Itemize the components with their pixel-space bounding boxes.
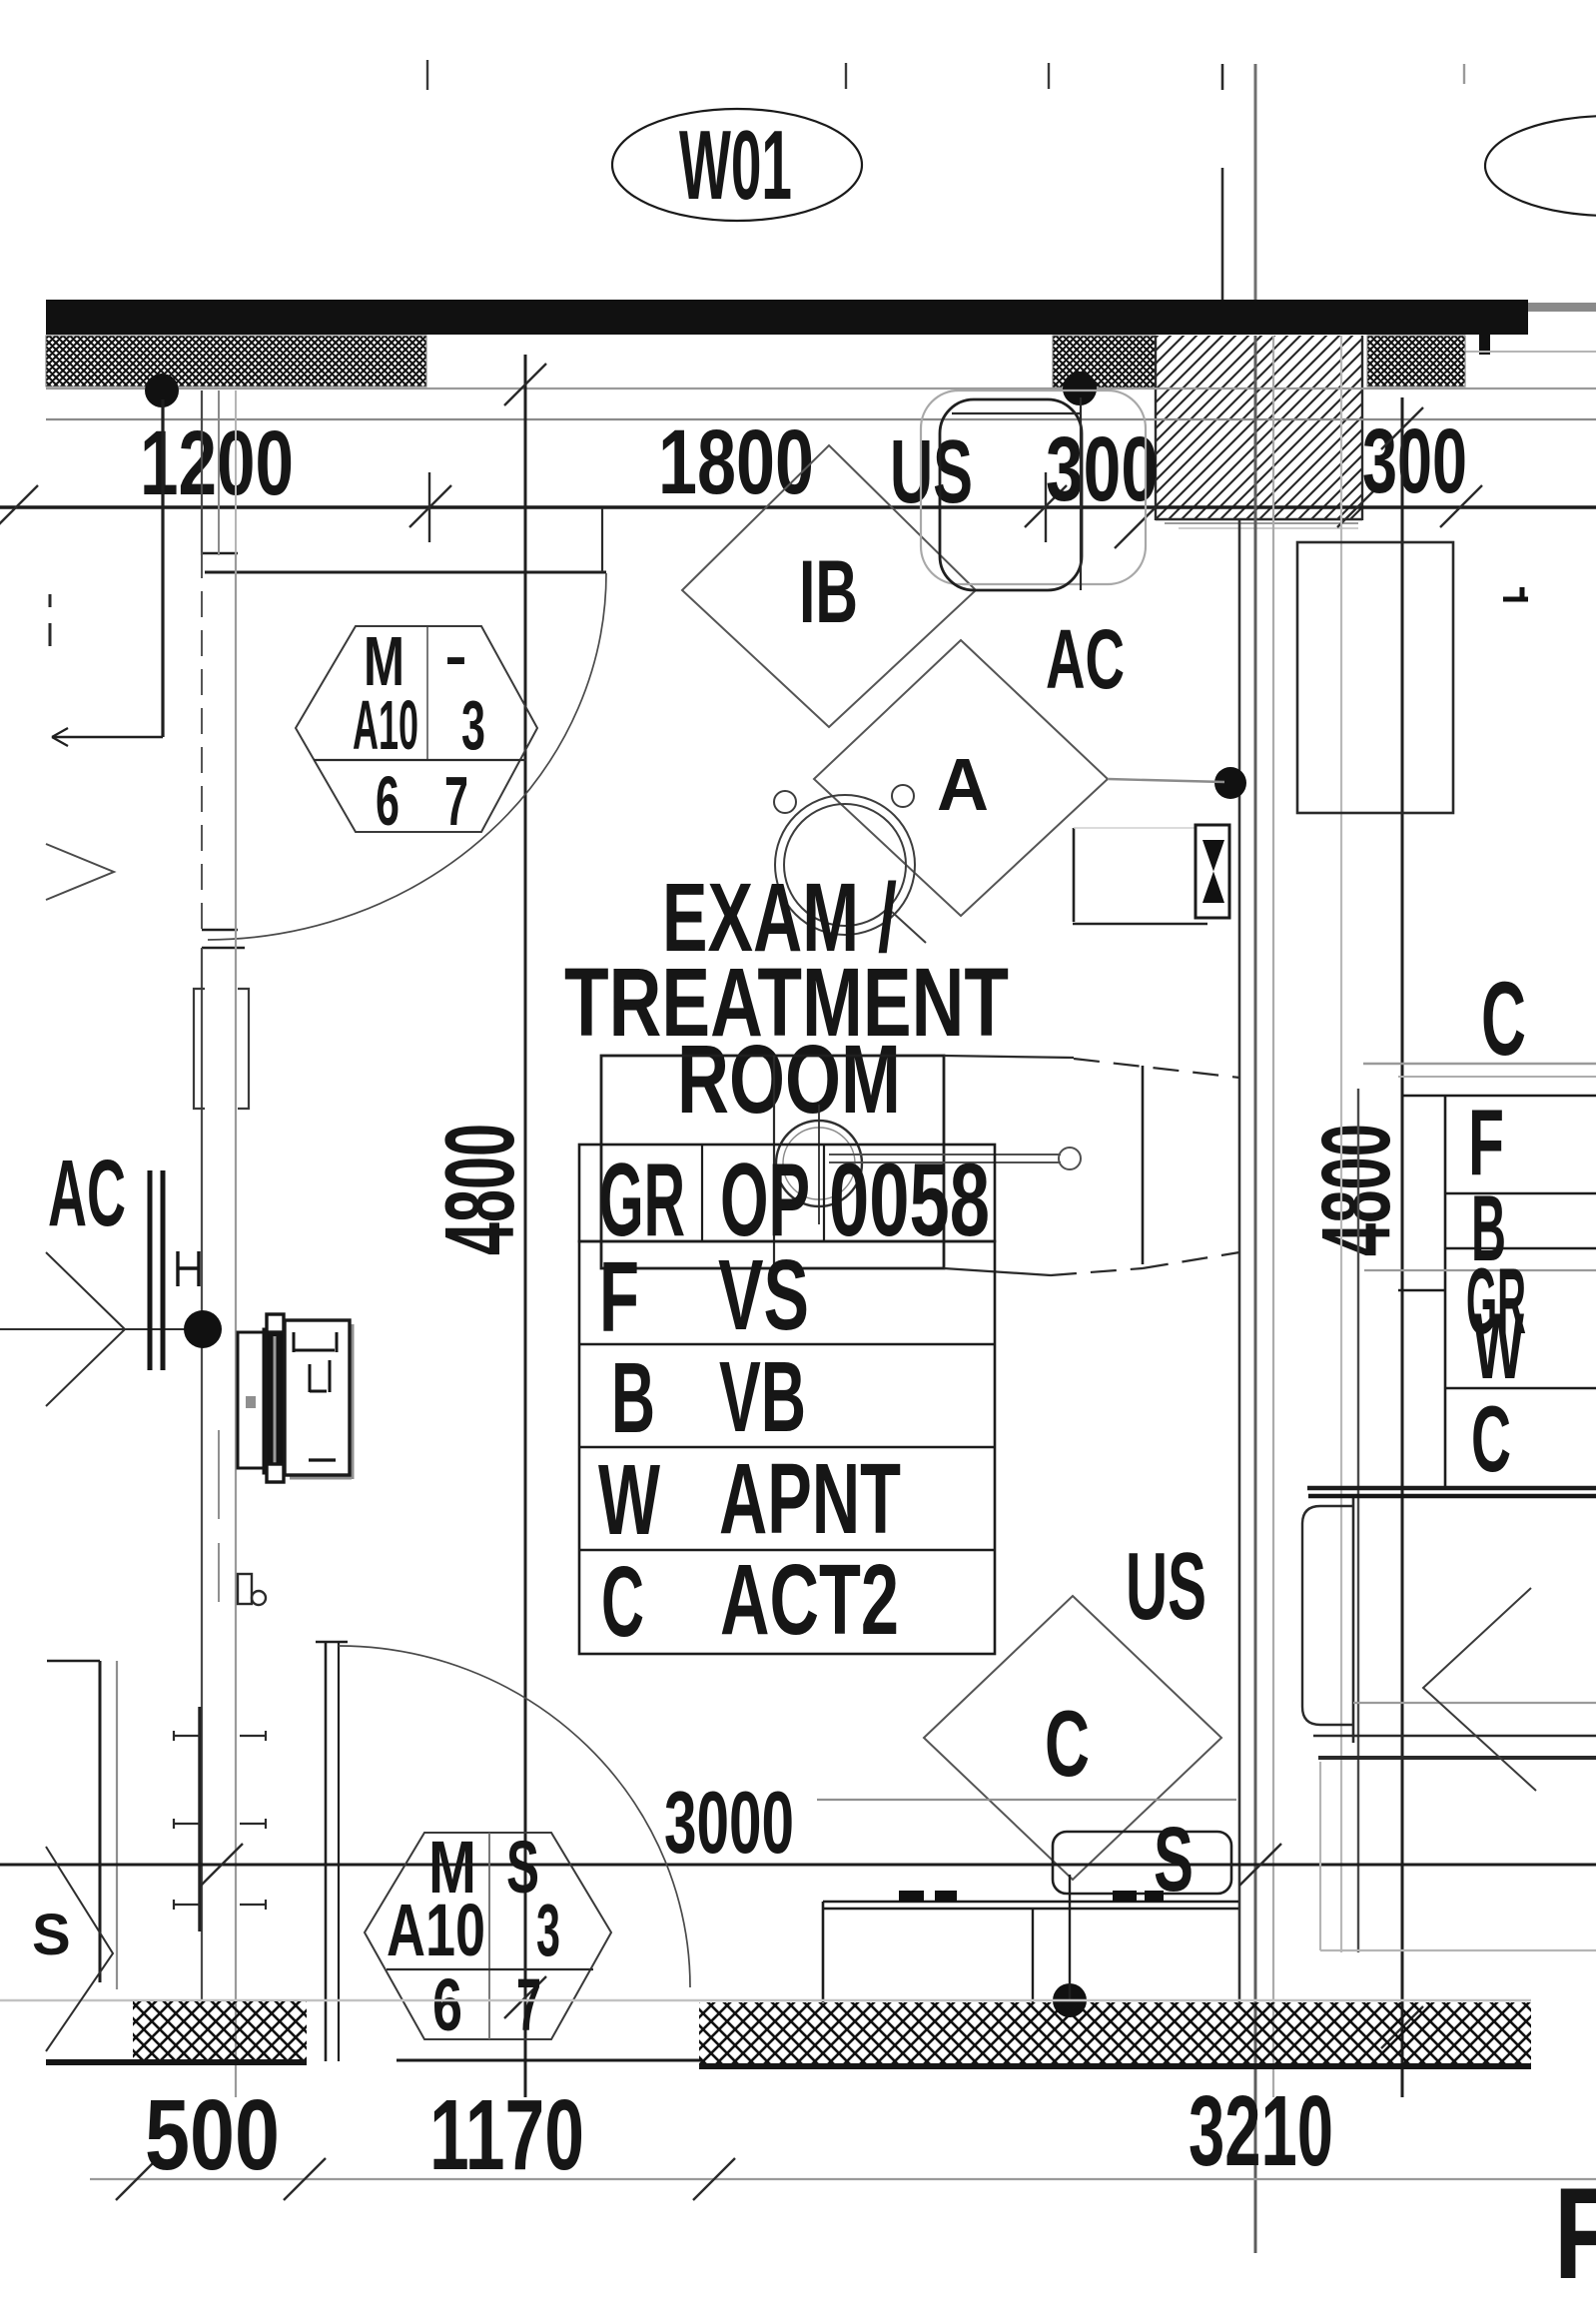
svg-text:A: A <box>937 743 989 826</box>
svg-text:C: C <box>601 1546 644 1658</box>
svg-text:7: 7 <box>516 1963 541 2046</box>
svg-text:7: 7 <box>444 762 468 840</box>
svg-text:4800: 4800 <box>1301 1124 1410 1256</box>
svg-text:APNT: APNT <box>719 1443 901 1555</box>
svg-text:3000: 3000 <box>664 1773 794 1872</box>
svg-text:S: S <box>506 1826 539 1909</box>
svg-text:0058: 0058 <box>829 1143 990 1258</box>
svg-text:3: 3 <box>536 1889 560 1971</box>
svg-text:W01: W01 <box>679 110 792 220</box>
svg-text:300: 300 <box>1362 410 1467 512</box>
svg-text:W: W <box>1473 1293 1524 1398</box>
svg-text:ACT2: ACT2 <box>720 1544 899 1656</box>
svg-text:B: B <box>611 1342 655 1454</box>
svg-text:W: W <box>598 1444 660 1556</box>
svg-text:3: 3 <box>461 686 485 764</box>
svg-text:C: C <box>1471 1386 1511 1491</box>
svg-text:VB: VB <box>719 1341 806 1453</box>
svg-text:AC: AC <box>1046 612 1125 706</box>
svg-text:C: C <box>1481 961 1526 1078</box>
svg-text:6: 6 <box>376 762 399 840</box>
svg-text:6: 6 <box>432 1963 462 2046</box>
svg-text:500: 500 <box>145 2079 280 2191</box>
svg-text:A10: A10 <box>353 686 418 764</box>
svg-text:AC: AC <box>48 1141 126 1246</box>
svg-text:C: C <box>1045 1691 1090 1796</box>
svg-text:IB: IB <box>799 541 858 641</box>
svg-text:VS: VS <box>718 1239 809 1351</box>
svg-text:300: 300 <box>1046 418 1159 520</box>
svg-text:F: F <box>599 1241 639 1353</box>
svg-text:1800: 1800 <box>658 411 814 513</box>
svg-text:US: US <box>1126 1533 1206 1640</box>
svg-text:3210: 3210 <box>1189 2075 1333 2187</box>
svg-text:S: S <box>32 1903 71 1967</box>
svg-text:4800: 4800 <box>424 1124 534 1255</box>
svg-text:US: US <box>890 422 973 522</box>
svg-text:ROOM: ROOM <box>677 1025 901 1134</box>
svg-text:F: F <box>1554 2160 1596 2306</box>
svg-text:1170: 1170 <box>429 2079 584 2191</box>
svg-text:A10: A10 <box>387 1889 485 1971</box>
svg-text:–: – <box>446 616 465 694</box>
